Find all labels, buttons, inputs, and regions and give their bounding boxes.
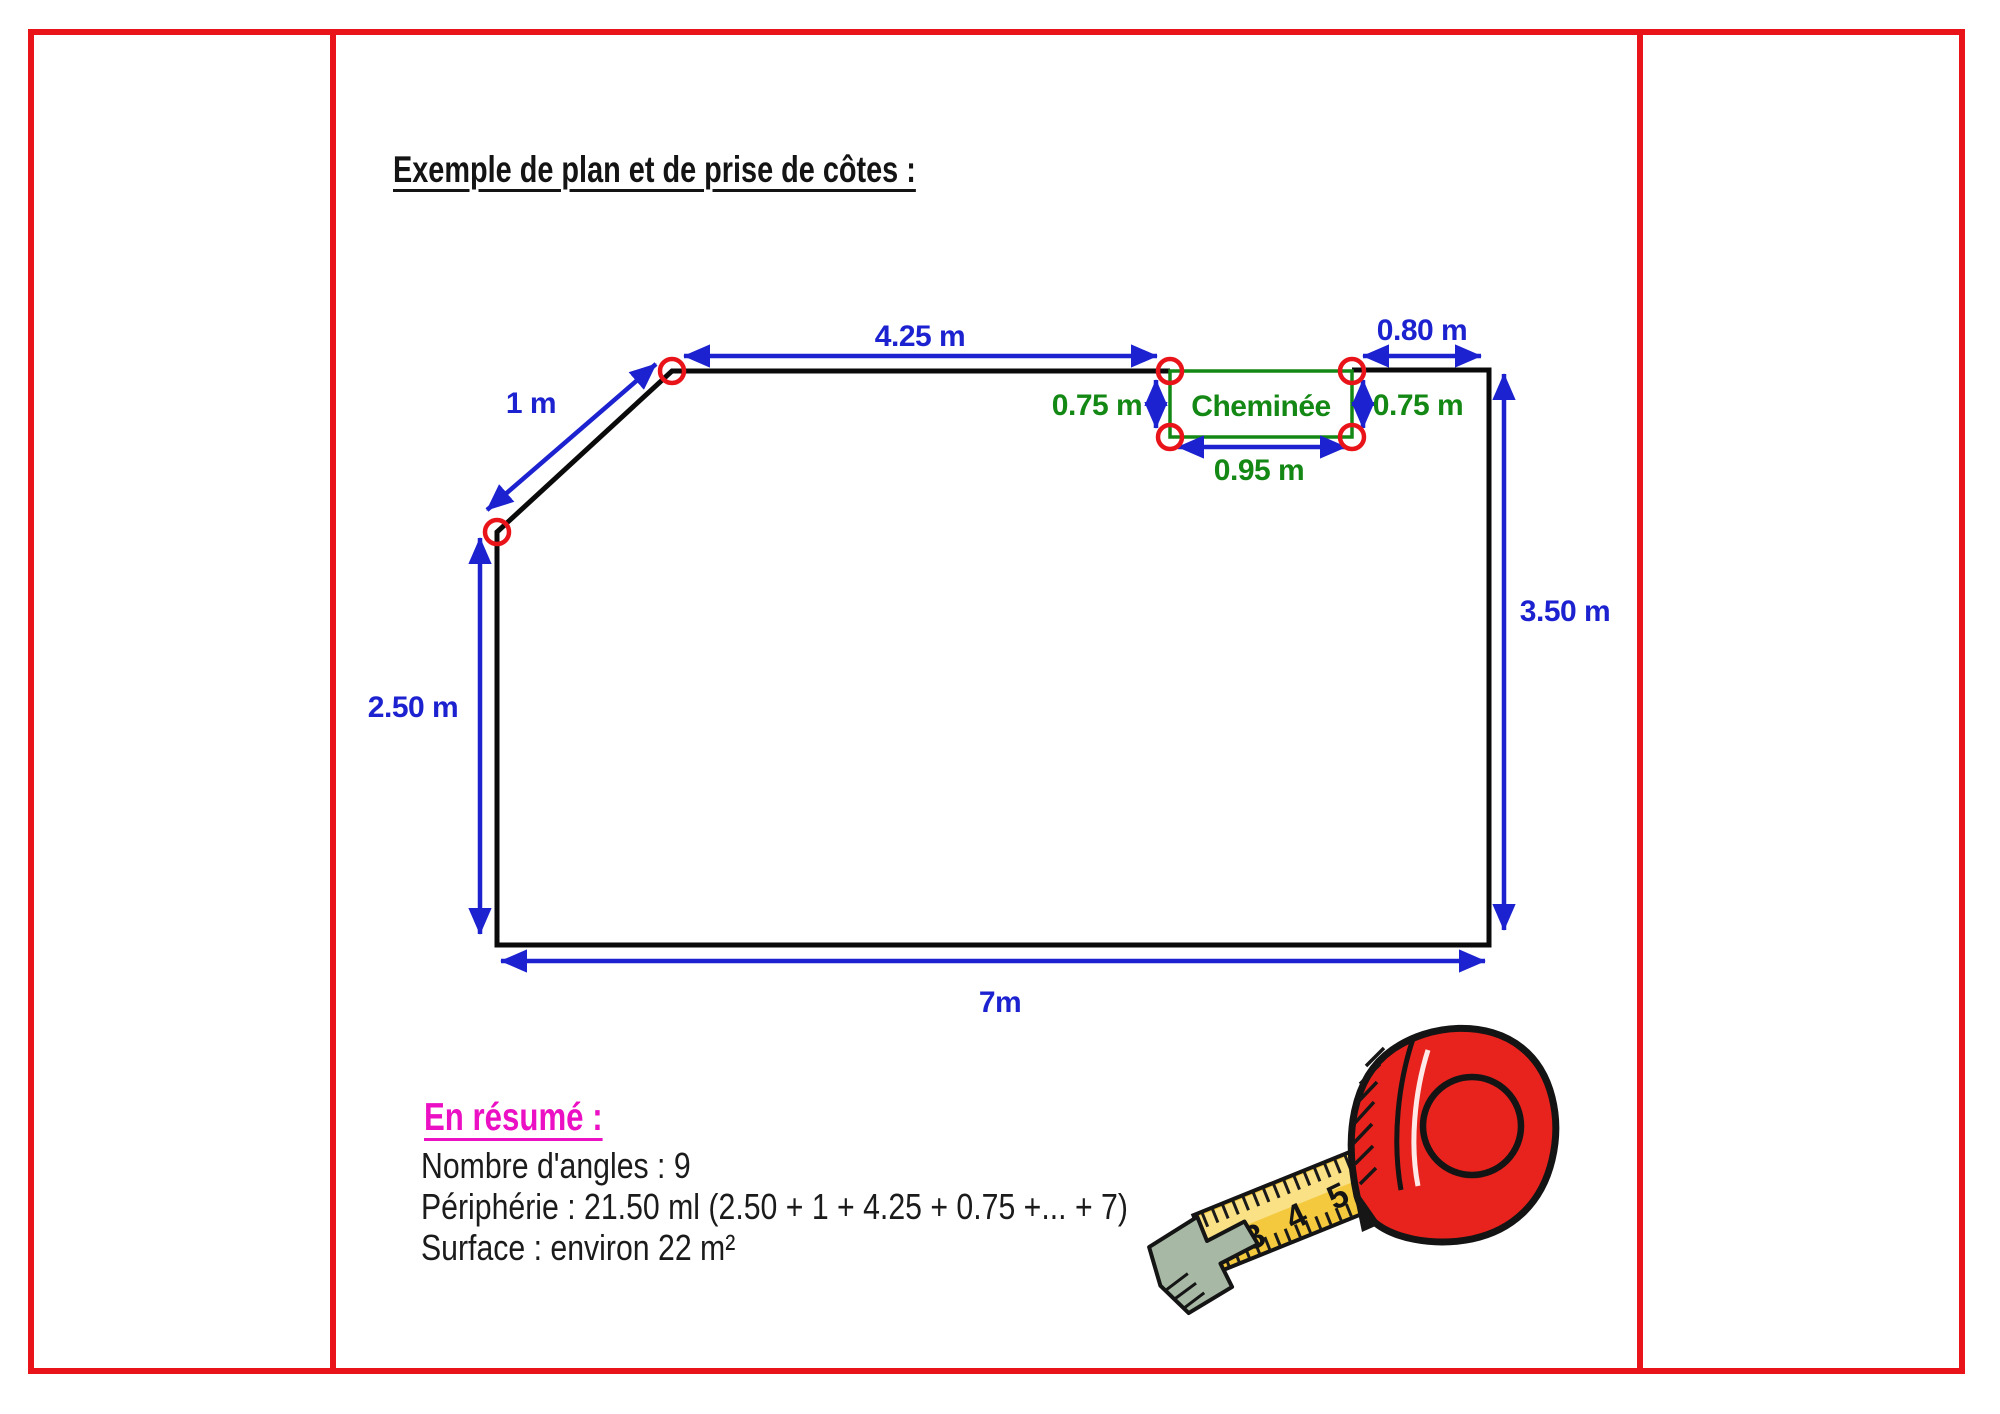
tape-body: [1351, 1028, 1555, 1242]
scanned-document-page: Exemple de plan et de prise de côtes :: [0, 0, 2000, 1414]
tape-measure-illustration: 3 4 5: [0, 0, 2000, 1414]
